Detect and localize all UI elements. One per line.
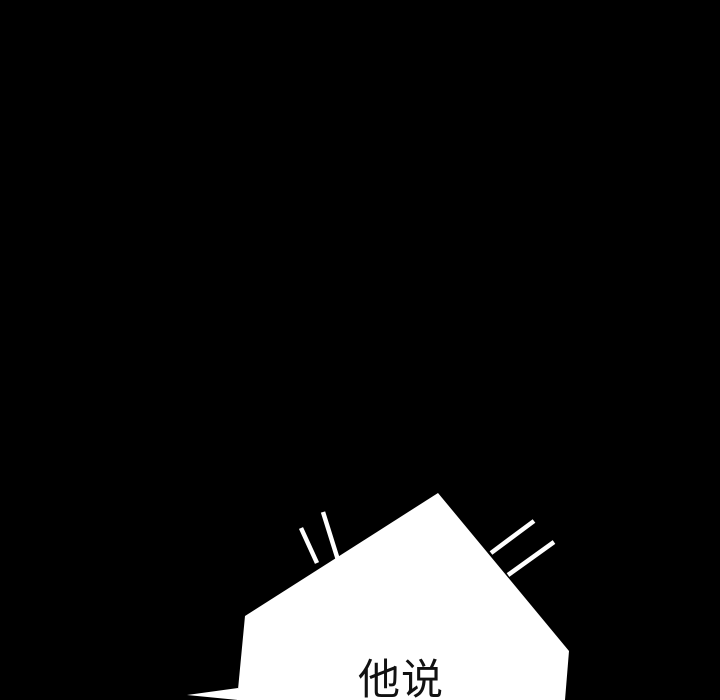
speech-bubble-text: 他说 [358, 655, 444, 700]
panel-artwork: 他说 [0, 0, 720, 700]
comic-panel: 他说 [0, 0, 720, 700]
